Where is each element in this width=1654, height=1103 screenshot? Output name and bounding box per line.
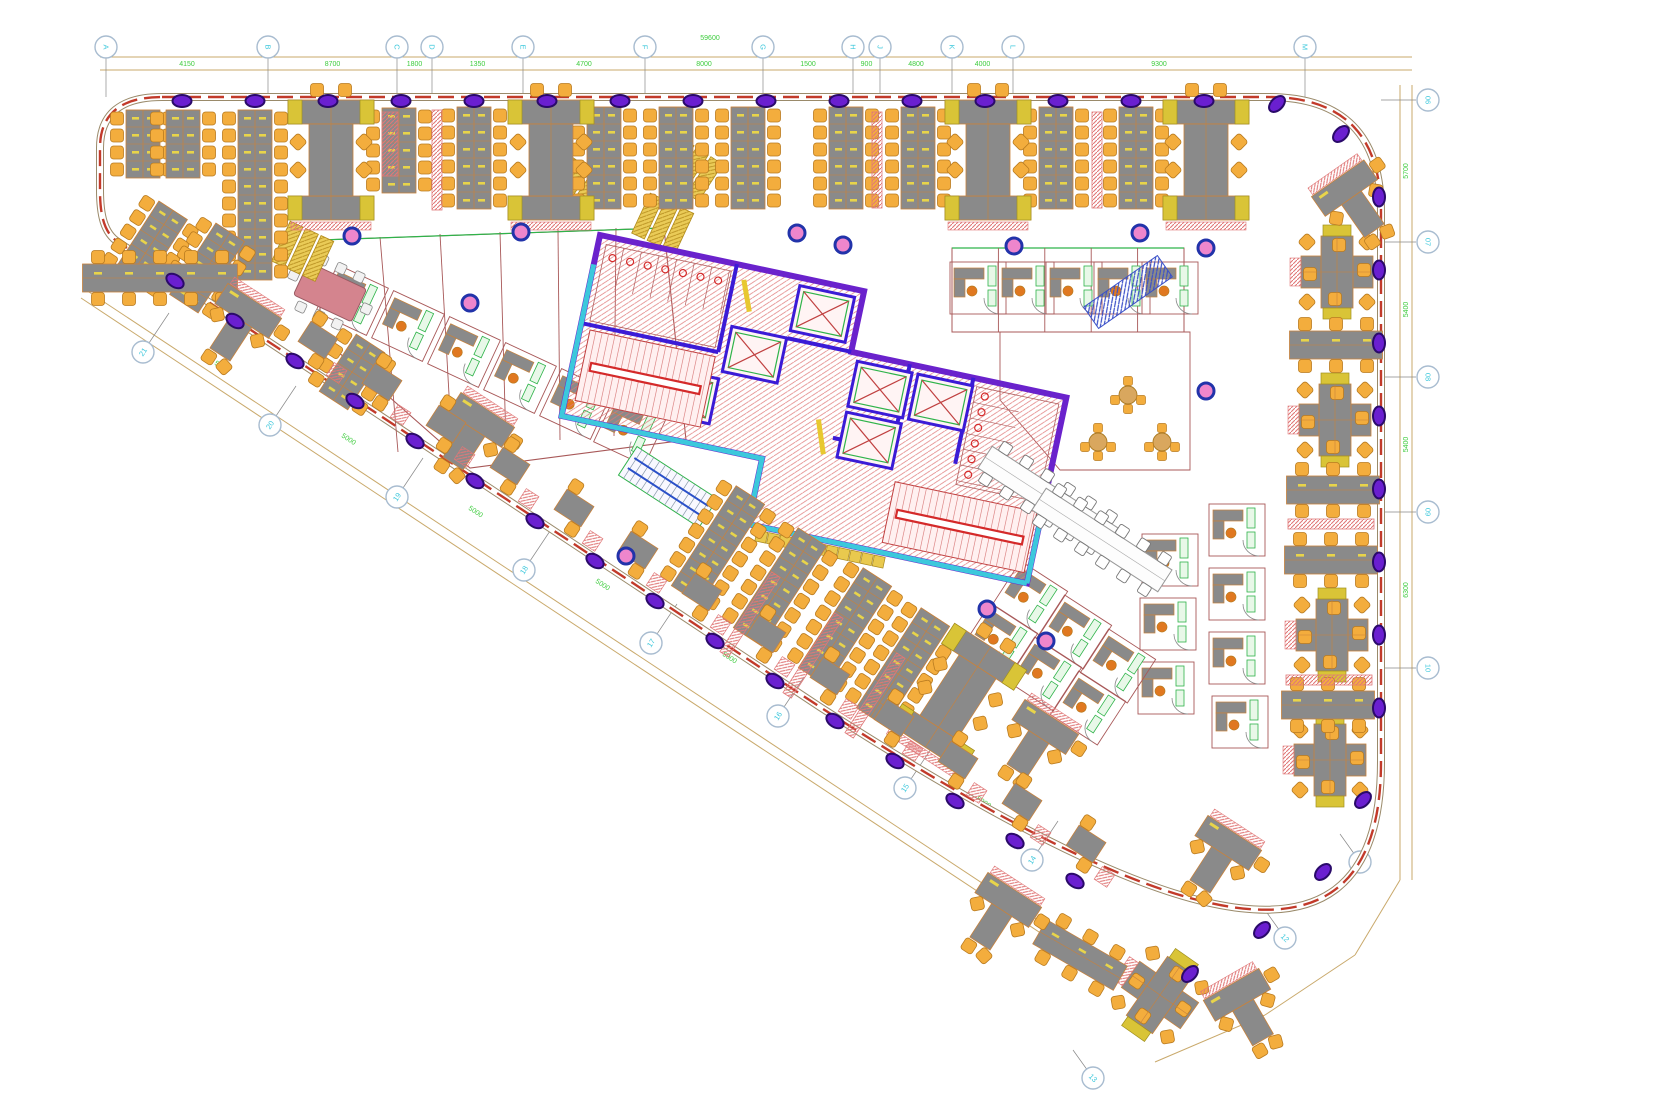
cabinet (1176, 690, 1184, 706)
elevator-shaft (790, 286, 854, 343)
chair (644, 194, 657, 207)
chair (1094, 424, 1103, 433)
desk-label-mark (907, 165, 914, 168)
locker (849, 550, 862, 563)
grid-bubble: 07 (1417, 231, 1439, 253)
grid-bubble-label: D (428, 44, 437, 50)
desk-label-mark (403, 132, 410, 135)
desk-label-mark (478, 165, 485, 168)
desk-label-mark (737, 148, 744, 151)
grid-bubble: 09 (1417, 501, 1439, 523)
grid-bubble-label: 08 (1424, 373, 1433, 381)
desk-label-mark (187, 272, 195, 275)
chair (111, 112, 124, 125)
chair (768, 160, 781, 173)
chair (1230, 865, 1245, 880)
desk-label-mark (1045, 165, 1052, 168)
chair (1358, 463, 1371, 476)
pink-column-marker (513, 224, 529, 240)
chair (1296, 381, 1314, 399)
grid-bubble-label: C (393, 44, 402, 50)
desk-label-mark (218, 272, 226, 275)
chair (1063, 286, 1073, 296)
chair (1076, 194, 1089, 207)
desk-label-mark (1045, 199, 1052, 202)
desk-label-mark (463, 148, 470, 151)
pink-cabinet (1283, 746, 1294, 774)
cabinet (1178, 626, 1186, 642)
grid-bubble: M (1294, 36, 1316, 58)
desk-label-mark (1060, 114, 1067, 117)
chair (696, 160, 709, 173)
desk-label-mark (1045, 131, 1052, 134)
desk-label-mark (478, 182, 485, 185)
chair (1325, 533, 1338, 546)
cabinet (1036, 290, 1044, 306)
chair (1076, 126, 1089, 139)
dimension-text: 4700 (576, 61, 592, 68)
chair (1297, 756, 1310, 769)
desk-label-mark (463, 199, 470, 202)
chair (1298, 293, 1316, 311)
desk-cluster-x (1290, 225, 1376, 319)
chair (1104, 143, 1117, 156)
chair (1155, 686, 1165, 696)
chair (123, 293, 136, 306)
desk-label-mark (1140, 131, 1147, 134)
chair (1190, 839, 1205, 854)
chair (1329, 211, 1344, 226)
desk-label-mark (132, 168, 139, 171)
dimension-text: 1800 (407, 61, 423, 68)
desk-label-mark (680, 114, 687, 117)
desk-label-mark (172, 151, 179, 154)
cabinet (1084, 266, 1092, 286)
chair (644, 143, 657, 156)
chair (339, 84, 352, 97)
chair (289, 161, 307, 179)
desk (1144, 604, 1174, 615)
grid-bubble-label: F (641, 45, 650, 50)
desk-wedge (1017, 100, 1031, 124)
chair (886, 143, 899, 156)
chair (886, 126, 899, 139)
chair (275, 214, 288, 227)
chair (1010, 922, 1025, 937)
chair (1299, 360, 1312, 373)
chair (1076, 109, 1089, 122)
desk-label-mark (463, 182, 470, 185)
grid-bubble: 14 (1021, 849, 1043, 871)
desk-label-mark (680, 131, 687, 134)
desk (1144, 615, 1155, 633)
desk-wedge (288, 196, 302, 220)
chair (1328, 602, 1341, 615)
chair (1361, 318, 1374, 331)
chair (1111, 995, 1126, 1010)
chair (275, 197, 288, 210)
chair (624, 109, 637, 122)
column-marker (1312, 861, 1334, 883)
grid-bubble: F (634, 36, 656, 58)
chair (494, 126, 507, 139)
chair (814, 126, 827, 139)
desk-label-mark (850, 148, 857, 151)
desk-label-mark (244, 168, 251, 171)
chair (1076, 160, 1089, 173)
grid-bubble: 08 (1417, 366, 1439, 388)
chair (1304, 268, 1317, 281)
chair (419, 144, 432, 157)
chair (1293, 656, 1311, 674)
cabinet (1178, 602, 1186, 622)
chair (275, 265, 288, 278)
column-marker (1373, 334, 1385, 353)
desk-wedge (945, 196, 959, 220)
chair (814, 194, 827, 207)
desk-label-mark (680, 148, 687, 151)
grid-bubble: 06 (1417, 89, 1439, 111)
chair (1351, 752, 1364, 765)
chair (716, 126, 729, 139)
column-marker (173, 95, 192, 107)
chair (111, 163, 124, 176)
desk (1213, 574, 1243, 585)
desk-label-mark (1360, 484, 1368, 487)
desk-label-mark (244, 202, 251, 205)
chair (223, 180, 236, 193)
desk-label-mark (259, 202, 266, 205)
pink-cabinet (1288, 519, 1374, 529)
chair (1156, 126, 1169, 139)
chair (1137, 396, 1146, 405)
chair (768, 143, 781, 156)
chair (275, 231, 288, 244)
desk-label-mark (752, 199, 759, 202)
desk-label-mark (752, 165, 759, 168)
desk (1002, 279, 1013, 297)
pink-column-marker (1198, 240, 1214, 256)
desk-wedge (580, 196, 594, 220)
elevator-shaft (722, 326, 786, 383)
chair (696, 126, 709, 139)
desk-label-mark (244, 185, 251, 188)
desk-label-mark (1358, 554, 1366, 557)
desk-label-mark (737, 131, 744, 134)
grid-bubble: H (842, 36, 864, 58)
cabinet (988, 266, 996, 286)
desk-label-mark (608, 199, 615, 202)
column-marker (976, 95, 995, 107)
chair (1356, 412, 1369, 425)
desk-label-mark (1355, 699, 1363, 702)
table (1119, 386, 1137, 404)
chair (1358, 264, 1371, 277)
chair (968, 84, 981, 97)
desk-cluster-strip (886, 107, 951, 209)
desk-label-mark (907, 114, 914, 117)
desk-wedge (1316, 796, 1344, 807)
grid-bubble: 20 (259, 414, 281, 436)
desk-label-mark (850, 199, 857, 202)
chair (1076, 143, 1089, 156)
cabinet (1247, 636, 1255, 656)
chair (1327, 463, 1340, 476)
chair (1296, 505, 1309, 518)
column-marker (1373, 553, 1385, 572)
desk-cluster-t (1198, 953, 1311, 1070)
chair (1330, 360, 1343, 373)
chair (1356, 575, 1369, 588)
desk (954, 279, 965, 297)
column-marker (1122, 95, 1141, 107)
chair (367, 178, 380, 191)
grid-bubble: E (512, 36, 534, 58)
pink-cabinet (382, 112, 398, 176)
desk-label-mark (259, 236, 266, 239)
grid-bubble-label: 07 (1424, 238, 1433, 246)
grid-bubble: 18 (513, 559, 535, 581)
pink-column-marker (1006, 238, 1022, 254)
desk-label-mark (132, 117, 139, 120)
desk (1050, 279, 1061, 297)
chair (1024, 177, 1037, 190)
chair (442, 143, 455, 156)
chair (973, 716, 988, 731)
pink-column-marker (344, 228, 360, 244)
chair (1145, 443, 1154, 452)
desk-label-mark (187, 168, 194, 171)
chair (1104, 109, 1117, 122)
desk-label-mark (665, 182, 672, 185)
desk-label-mark (1140, 199, 1147, 202)
desk-label-mark (1140, 182, 1147, 185)
desk-label-mark (1296, 554, 1304, 557)
dimension-text: 8000 (696, 61, 712, 68)
desk-label-mark (187, 151, 194, 154)
desk-cluster-row (1287, 463, 1380, 518)
chair (1294, 533, 1307, 546)
elevator-shaft (837, 412, 901, 469)
chair (1104, 160, 1117, 173)
chair (1356, 381, 1374, 399)
pink-cabinet (1286, 675, 1372, 685)
grid-bubble: 13 (1082, 1067, 1104, 1089)
chair (970, 896, 985, 911)
desk-label-mark (388, 183, 395, 186)
desk-cluster-strip (1024, 107, 1089, 209)
desk (1213, 649, 1224, 667)
grid-bubble: 15 (894, 777, 916, 799)
desk-label-mark (608, 114, 615, 117)
chair (203, 146, 216, 159)
chair (419, 178, 432, 191)
grid-bubble: J (869, 36, 891, 58)
chair (1171, 443, 1180, 452)
chair (1322, 720, 1335, 733)
chair (768, 177, 781, 190)
pink-cabinet-strip (432, 110, 442, 210)
desk-label-mark (463, 131, 470, 134)
dimension-line (1355, 880, 1400, 955)
chair (1158, 424, 1167, 433)
desk-label-mark (593, 131, 600, 134)
floor-plan-drawing: 4150870018001350470080001500900480040009… (0, 0, 1654, 1103)
desk-label-mark (1363, 339, 1371, 342)
grid-bubble-label: 10 (1424, 664, 1433, 672)
desk-label-mark (1298, 484, 1306, 487)
desk-label-mark (478, 114, 485, 117)
cabinet (521, 384, 535, 402)
cabinet (1180, 538, 1188, 558)
chair (203, 129, 216, 142)
chair (419, 161, 432, 174)
desk-label-mark (172, 168, 179, 171)
chair (716, 143, 729, 156)
chair (216, 251, 229, 264)
chair (509, 161, 527, 179)
pink-cabinet-strip (1288, 519, 1374, 529)
chair (151, 146, 164, 159)
chair (223, 129, 236, 142)
column-marker (684, 95, 703, 107)
desk-label-mark (1140, 114, 1147, 117)
cabinet (1247, 572, 1255, 592)
pink-cabinet-strip (1286, 675, 1372, 685)
column-marker (246, 95, 265, 107)
workstation-pair (994, 772, 1070, 846)
column-marker (319, 95, 338, 107)
desk-label-mark (1125, 148, 1132, 151)
chair (716, 194, 729, 207)
dimension-text: 4150 (179, 61, 195, 68)
chair (768, 126, 781, 139)
chair (1356, 533, 1369, 546)
chair (185, 251, 198, 264)
dimension-text: 5700 (1403, 163, 1410, 179)
cabinet (1180, 562, 1188, 578)
desk-label-mark (1060, 182, 1067, 185)
chair (716, 160, 729, 173)
chair (494, 143, 507, 156)
chair (814, 109, 827, 122)
chair (716, 109, 729, 122)
desk-label-mark (922, 131, 929, 134)
office-cell (1212, 696, 1268, 748)
cabinet (1250, 700, 1258, 720)
desk-label-mark (187, 117, 194, 120)
chair (917, 680, 932, 695)
column-marker (1004, 831, 1026, 851)
chair (154, 251, 167, 264)
column-marker (903, 95, 922, 107)
chair (1324, 656, 1337, 669)
chair (111, 146, 124, 159)
chair (442, 160, 455, 173)
desk (1002, 268, 1032, 279)
desk (1142, 679, 1153, 697)
desk-label-mark (259, 117, 266, 120)
chair (1333, 239, 1346, 252)
chair (275, 112, 288, 125)
desk-label-mark (752, 182, 759, 185)
chair (1015, 286, 1025, 296)
desk-label-mark (132, 134, 139, 137)
chair (1104, 177, 1117, 190)
desk-label-mark (1060, 148, 1067, 151)
grid-bubble: 12 (1274, 927, 1296, 949)
chair (1299, 631, 1312, 644)
chair (886, 160, 899, 173)
pink-cabinet-strip (872, 112, 882, 208)
chair (494, 194, 507, 207)
desk (1213, 585, 1224, 603)
desk-label-mark (1125, 199, 1132, 202)
dimension-text: 9300 (1151, 61, 1167, 68)
chair (814, 143, 827, 156)
desk-label-mark (478, 148, 485, 151)
desk-label-mark (608, 165, 615, 168)
desk-label-mark (172, 134, 179, 137)
desk-label-mark (1301, 339, 1309, 342)
pink-cabinet (1285, 621, 1296, 649)
desk-wedge (508, 196, 522, 220)
chair (1358, 293, 1376, 311)
desk-label-mark (665, 165, 672, 168)
desk-label-mark (835, 182, 842, 185)
dimension-total-text: 59600 (700, 35, 720, 42)
desk-label-mark (608, 131, 615, 134)
chair (250, 333, 265, 348)
chair (696, 194, 709, 207)
desk-label-mark (922, 199, 929, 202)
chair (932, 656, 947, 671)
desk-label-mark (1140, 148, 1147, 151)
desk-label-mark (463, 114, 470, 117)
chair (1353, 596, 1371, 614)
desk-label-mark (1125, 131, 1132, 134)
pink-cabinet (948, 222, 1028, 230)
floor-plan-page: 4150870018001350470080001500900480040009… (0, 0, 1654, 1103)
desk-label-mark (665, 114, 672, 117)
grid-bubble-label: B (264, 44, 273, 49)
round-table (1145, 424, 1180, 461)
grid-bubble: 19 (386, 486, 408, 508)
chair (1076, 177, 1089, 190)
desk-cluster-strip (367, 108, 432, 193)
grid-bubble-label: L (1009, 45, 1018, 49)
pink-column-marker (1132, 225, 1148, 241)
grid-bubble: D (421, 36, 443, 58)
desk-wedge (580, 100, 594, 124)
chair (1226, 656, 1236, 666)
chair (509, 133, 527, 151)
desk-label-mark (244, 117, 251, 120)
cabinet (1247, 508, 1255, 528)
desk-label-mark (907, 199, 914, 202)
chair (1268, 1034, 1284, 1050)
desk-cluster-strip (716, 107, 781, 209)
chair (442, 126, 455, 139)
desk-wedge (1163, 196, 1177, 220)
chair (624, 160, 637, 173)
desk-label-mark (1125, 165, 1132, 168)
pink-cabinet (432, 110, 442, 210)
chair (1158, 452, 1167, 461)
desk-label-mark (1045, 148, 1052, 151)
pink-column-marker (835, 237, 851, 253)
cabinet (1247, 660, 1255, 676)
